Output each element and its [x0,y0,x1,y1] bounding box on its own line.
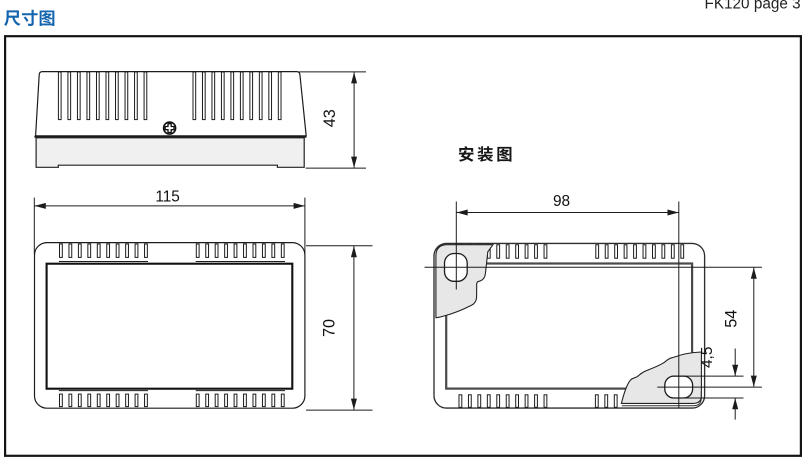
svg-text:43: 43 [321,109,339,127]
svg-text:70: 70 [321,319,339,337]
svg-text:115: 115 [155,188,180,205]
svg-text:98: 98 [553,193,570,210]
svg-text:4,5: 4,5 [699,347,716,368]
svg-text:54: 54 [723,310,741,328]
svg-text:FK120 page 3: FK120 page 3 [705,0,801,12]
